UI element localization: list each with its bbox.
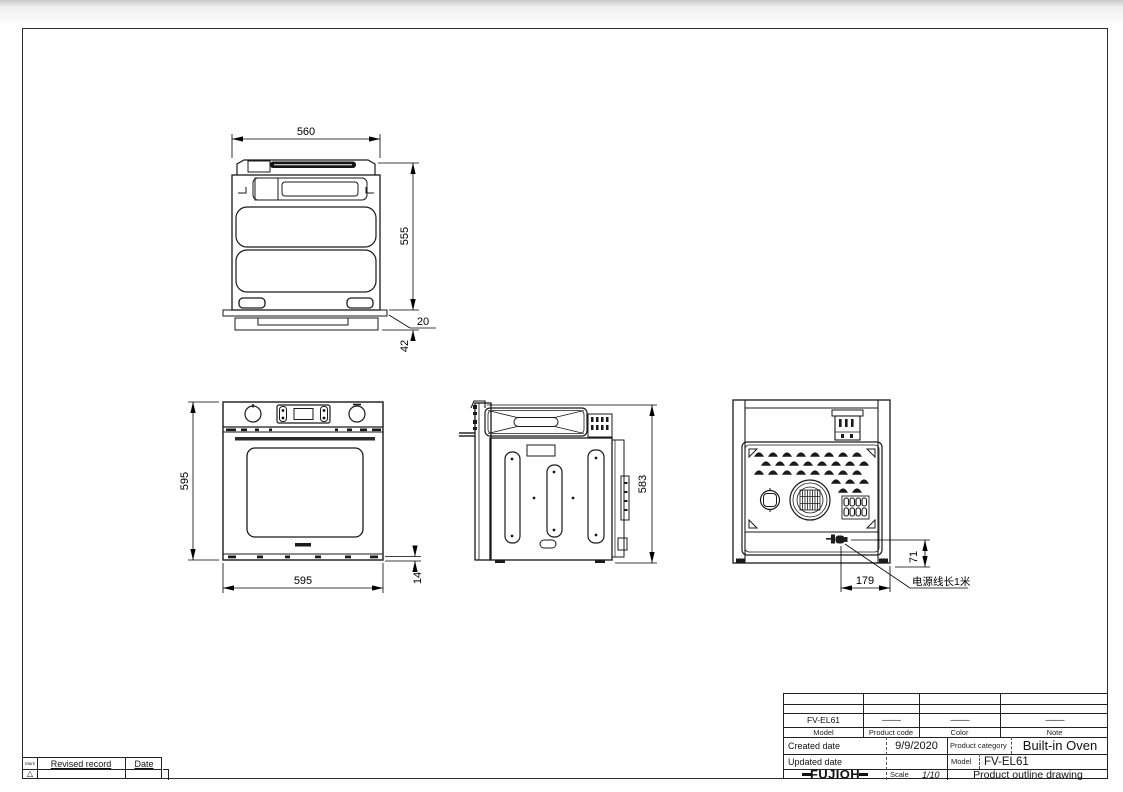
revision-record-label: Revised record (37, 758, 125, 769)
drawing-title: Product outline drawing (947, 769, 1109, 780)
product-category-label: Product category (950, 737, 1010, 754)
front-dim-trim: 14 (412, 572, 424, 584)
model-value-top: FV-EL61 (784, 713, 863, 727)
front-view-body (223, 402, 383, 560)
note-value: —— (1000, 713, 1109, 727)
drawing-page: { "views": { "top": { "dim_width": "560"… (0, 0, 1123, 792)
brand-logo: FUJIOH (784, 769, 886, 780)
top-view: 560 555 20 42 (170, 118, 450, 358)
product-code-label: Product code (863, 727, 919, 737)
model-label-2: Model (951, 754, 979, 769)
scale-value: 1/10 (922, 769, 947, 780)
back-view-body (733, 400, 890, 563)
back-dim-cord-height: 71 (908, 551, 920, 563)
color-label: Color (919, 727, 1000, 737)
title-block-line (979, 754, 980, 769)
color-value: —— (919, 713, 1000, 727)
model-label: Model (784, 727, 863, 737)
front-dim-height: 595 (179, 472, 191, 490)
top-dim-overhang: 42 (399, 340, 411, 352)
revision-mark-symbol: △ (23, 769, 37, 778)
power-cord-note: 电源线长1米 (912, 575, 971, 588)
revision-mark-label: Mark (23, 758, 37, 769)
revision-table-step (163, 769, 169, 780)
title-block-line (784, 704, 1107, 705)
front-dim-width: 595 (294, 575, 312, 587)
created-date-value: 9/9/2020 (886, 737, 947, 754)
product-code-value: —— (863, 713, 919, 727)
model-value-2: FV-EL61 (984, 754, 1109, 769)
top-view-body (223, 160, 387, 330)
top-dim-gap: 20 (417, 316, 429, 328)
product-category-value: Built-in Oven (1011, 737, 1109, 754)
scale-label: Scale (890, 769, 920, 780)
updated-date-label: Updated date (788, 754, 884, 769)
power-cord-gland (826, 535, 848, 544)
updated-date-value (886, 754, 947, 769)
back-dim-cord-offset: 179 (856, 575, 874, 587)
revision-table: Mark △ Revised record Date (22, 757, 162, 779)
louver-pattern (755, 453, 868, 492)
title-block: FV-EL61 —— —— —— Model Product code Colo… (783, 693, 1108, 779)
revision-date-label: Date (125, 758, 163, 769)
side-view-body (459, 401, 629, 563)
back-view: 71 179 电源线长1米 (705, 392, 1000, 607)
brand-bar-right (859, 773, 868, 776)
top-dim-width: 560 (297, 126, 315, 138)
brand-name: FUJIOH (810, 769, 860, 780)
side-dim-depth: 583 (637, 475, 649, 493)
front-view: 595 595 14 (165, 385, 435, 610)
created-date-label: Created date (788, 737, 884, 754)
top-dim-depth: 555 (399, 227, 411, 245)
side-view-dimensions (487, 405, 657, 563)
note-label: Note (1000, 727, 1109, 737)
side-view: 583 (455, 392, 670, 582)
